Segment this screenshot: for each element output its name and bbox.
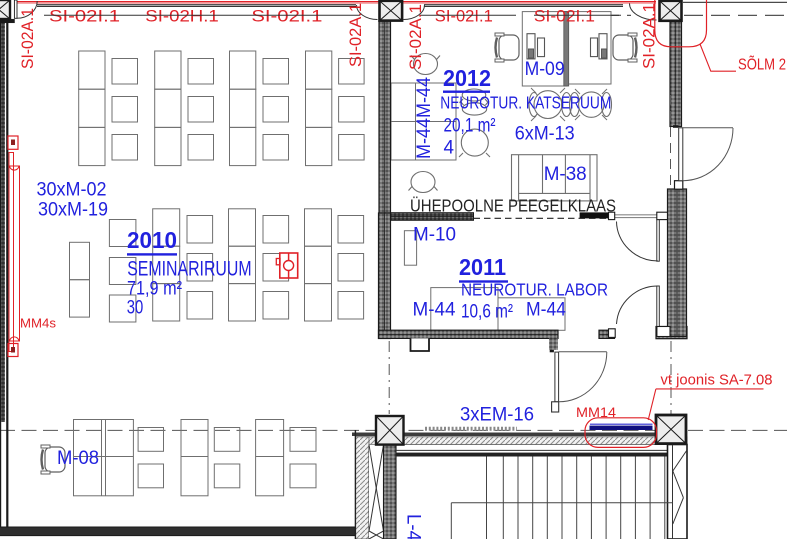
svg-text:SI-02A.1: SI-02A.1 bbox=[407, 4, 425, 70]
svg-text:M-09: M-09 bbox=[525, 59, 565, 80]
svg-text:NEUROTUR. LABOR: NEUROTUR. LABOR bbox=[461, 280, 608, 300]
svg-text:SEMINARIRUUM: SEMINARIRUUM bbox=[127, 258, 251, 281]
svg-text:M-44: M-44 bbox=[526, 300, 566, 321]
svg-text:SI-02A.1: SI-02A.1 bbox=[641, 3, 659, 69]
svg-text:2011: 2011 bbox=[459, 254, 506, 280]
svg-text:20,1 m²: 20,1 m² bbox=[444, 116, 496, 137]
svg-text:ÜHEPOOLNE PEEGELKLAAS: ÜHEPOOLNE PEEGELKLAAS bbox=[410, 196, 616, 216]
svg-text:SI-02I.1: SI-02I.1 bbox=[49, 7, 120, 26]
svg-text:M-38: M-38 bbox=[544, 164, 587, 185]
svg-text:vt joonis SA-7.08: vt joonis SA-7.08 bbox=[661, 372, 773, 389]
svg-text:6xM-13: 6xM-13 bbox=[515, 124, 575, 145]
svg-text:L-4: L-4 bbox=[403, 514, 424, 539]
svg-text:NEUROTUR. KATSERUUM: NEUROTUR. KATSERUUM bbox=[440, 93, 611, 113]
svg-text:MM4s: MM4s bbox=[20, 316, 57, 331]
svg-text:M-44M-44: M-44M-44 bbox=[414, 77, 435, 159]
svg-text:3xEM-16: 3xEM-16 bbox=[460, 405, 534, 426]
svg-text:SI-02A.1: SI-02A.1 bbox=[19, 8, 37, 69]
svg-text:4: 4 bbox=[444, 138, 455, 159]
svg-text:SI-02A.1: SI-02A.1 bbox=[347, 3, 365, 67]
svg-text:M-44: M-44 bbox=[413, 300, 456, 321]
svg-text:10,6 m²: 10,6 m² bbox=[461, 302, 513, 323]
svg-text:71,9 m²: 71,9 m² bbox=[127, 279, 182, 300]
svg-text:2010: 2010 bbox=[127, 227, 177, 253]
svg-text:M-08: M-08 bbox=[57, 448, 99, 469]
svg-text:30xM-02: 30xM-02 bbox=[37, 180, 107, 201]
svg-text:SI-02H.1: SI-02H.1 bbox=[145, 7, 219, 26]
svg-text:SI-02I.1: SI-02I.1 bbox=[435, 7, 493, 26]
svg-text:2012: 2012 bbox=[443, 65, 491, 91]
svg-text:SI-02I.1: SI-02I.1 bbox=[251, 7, 322, 26]
svg-text:SI-02I.1: SI-02I.1 bbox=[534, 7, 595, 26]
svg-text:SÕLM 2: SÕLM 2 bbox=[738, 57, 786, 74]
svg-text:MM14: MM14 bbox=[576, 405, 617, 420]
svg-text:30: 30 bbox=[127, 298, 144, 319]
svg-text:30xM-19: 30xM-19 bbox=[38, 200, 108, 221]
svg-text:M-10: M-10 bbox=[413, 225, 456, 246]
